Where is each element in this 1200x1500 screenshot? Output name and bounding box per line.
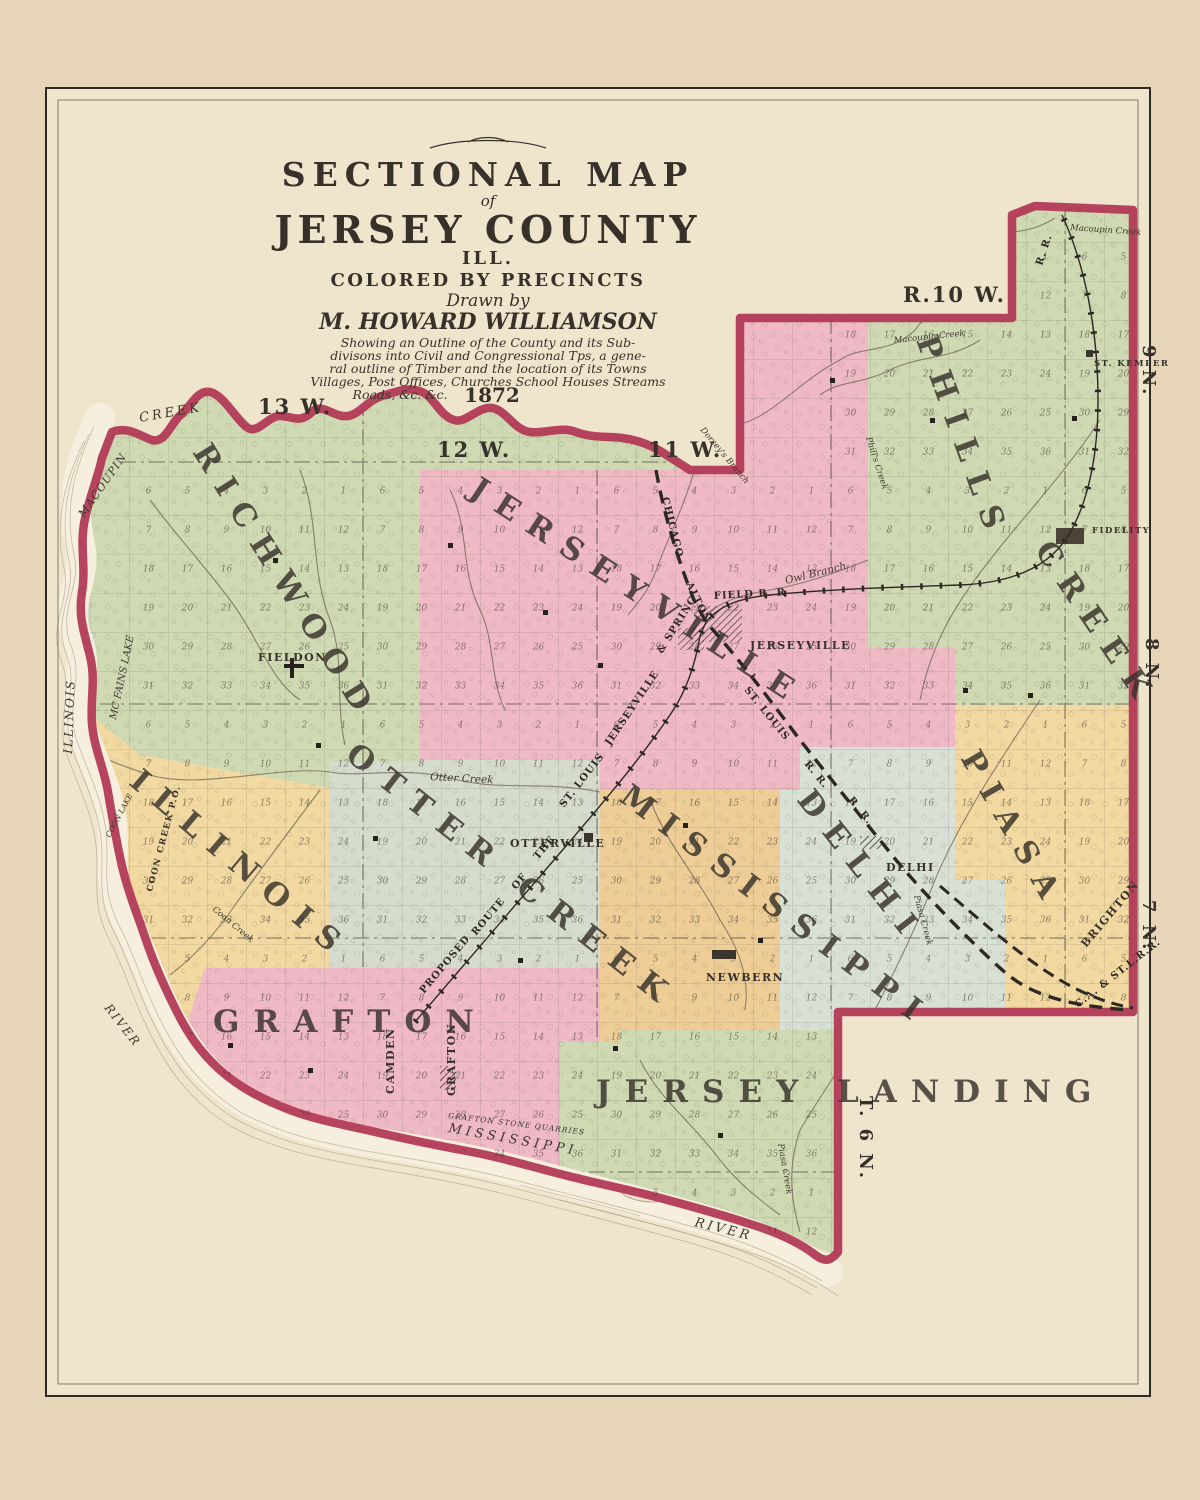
section-number: 20 — [1117, 604, 1130, 614]
section-number: 25 — [571, 877, 584, 887]
section-number: 14 — [1001, 331, 1013, 341]
section-number: 10 — [494, 994, 506, 1004]
section-number: 4 — [223, 955, 230, 965]
section-number: 6 — [380, 955, 386, 965]
section-number: 31 — [611, 1150, 622, 1160]
section-number: 18 — [377, 799, 389, 809]
section-number: 24 — [1039, 838, 1052, 848]
section-number: 32 — [416, 916, 428, 926]
section-number: 35 — [533, 1150, 545, 1160]
section-number: 27 — [259, 643, 272, 653]
section-number: 5 — [653, 955, 659, 965]
section-number: 18 — [845, 565, 857, 575]
section-number: 26 — [532, 643, 545, 653]
section-number: 8 — [887, 994, 893, 1004]
section-number: 22 — [727, 604, 740, 614]
section-number: 8 — [419, 994, 425, 1004]
section-number: 16 — [689, 565, 701, 575]
section-number: 17 — [650, 565, 662, 575]
section-number: 35 — [533, 682, 545, 692]
section-number: 8 — [653, 994, 659, 1004]
section-number: 1 — [809, 721, 815, 731]
section-number: 35 — [299, 916, 311, 926]
section-number: 11 — [1001, 994, 1012, 1004]
section-number: 33 — [455, 682, 467, 692]
section-number: 23 — [1000, 838, 1013, 848]
section-number: 2 — [769, 1189, 776, 1199]
section-number: 21 — [688, 604, 700, 614]
section-number: 24 — [571, 604, 584, 614]
map-sheet: SECTIONAL MAP of JERSEY COUNTY ILL. COLO… — [0, 0, 1200, 1500]
section-number: 4 — [691, 955, 698, 965]
section-number: 9 — [692, 760, 698, 770]
section-number: 26 — [1000, 643, 1013, 653]
section-number: 33 — [689, 682, 701, 692]
section-number: 2 — [769, 721, 776, 731]
section-number: 1 — [575, 487, 581, 497]
section-number: 34 — [962, 916, 974, 926]
section-number: 11 — [533, 760, 544, 770]
section-number: 27 — [727, 1111, 740, 1121]
section-number: 20 — [415, 604, 428, 614]
section-number: 11 — [533, 994, 544, 1004]
section-number: 22 — [259, 604, 272, 614]
section-number: 8 — [1121, 292, 1127, 302]
section-number: 36 — [1040, 682, 1052, 692]
section-number: 6 — [146, 487, 152, 497]
section-number: 29 — [649, 1111, 662, 1121]
section-number: 15 — [260, 799, 272, 809]
section-number: 9 — [458, 526, 464, 536]
section-number: 29 — [181, 877, 194, 887]
section-number: 29 — [1117, 409, 1130, 419]
section-number: 2 — [535, 721, 542, 731]
section-number: 19 — [1079, 370, 1091, 380]
section-number: 2 — [1003, 955, 1010, 965]
section-number: 31 — [1079, 916, 1090, 926]
section-number: 13 — [572, 565, 584, 575]
section-number: 32 — [1118, 448, 1130, 458]
section-number: 24 — [805, 1072, 818, 1082]
section-number: 6 — [614, 721, 620, 731]
section-number: 12 — [338, 994, 350, 1004]
section-number: 14 — [299, 1033, 311, 1043]
section-number: 35 — [767, 682, 779, 692]
section-number: 5 — [1121, 253, 1127, 263]
section-number: 5 — [419, 721, 425, 731]
title-line4: ILL. — [462, 248, 514, 269]
section-number: 17 — [650, 799, 662, 809]
section-number: 31 — [845, 448, 856, 458]
section-number: 36 — [572, 682, 584, 692]
section-number: 18 — [845, 331, 857, 341]
section-number: 35 — [533, 916, 545, 926]
section-number: 31 — [377, 916, 388, 926]
section-number: 25 — [1039, 877, 1052, 887]
section-number: 7 — [146, 526, 152, 536]
section-number: 17 — [416, 565, 428, 575]
section-number: 29 — [181, 643, 194, 653]
section-number: 21 — [688, 1072, 700, 1082]
section-number: 21 — [454, 1072, 466, 1082]
section-number: 20 — [649, 604, 662, 614]
section-number: 21 — [454, 838, 466, 848]
section-number: 17 — [884, 565, 896, 575]
section-number: 27 — [961, 409, 974, 419]
title-author: M. HOWARD WILLIAMSON — [318, 309, 658, 335]
section-number: 30 — [611, 643, 623, 653]
section-number: 18 — [1079, 331, 1091, 341]
section-number: 10 — [260, 760, 272, 770]
section-number: 29 — [883, 877, 896, 887]
section-number: 25 — [571, 643, 584, 653]
section-number: 32 — [650, 682, 662, 692]
section-number: 15 — [260, 565, 272, 575]
section-number: 26 — [766, 1111, 779, 1121]
section-number: 14 — [533, 1033, 545, 1043]
section-number: 18 — [611, 799, 623, 809]
section-number: 23 — [298, 604, 311, 614]
section-number: 15 — [494, 565, 506, 575]
section-number: 17 — [416, 1033, 428, 1043]
section-number: 19 — [845, 604, 857, 614]
section-number: 3 — [497, 955, 503, 965]
section-number: 24 — [571, 1072, 584, 1082]
section-number: 23 — [298, 1072, 311, 1082]
section-number: 10 — [962, 526, 974, 536]
section-number: 6 — [380, 721, 386, 731]
title-block: SECTIONAL MAP of JERSEY COUNTY ILL. COLO… — [272, 138, 702, 408]
section-number: 4 — [691, 721, 698, 731]
section-number: 8 — [653, 760, 659, 770]
section-number: 1 — [809, 1189, 815, 1199]
section-number: 27 — [259, 877, 272, 887]
section-number: 13 — [338, 565, 350, 575]
section-number: 27 — [493, 877, 506, 887]
section-number: 16 — [221, 1033, 233, 1043]
section-number: 16 — [221, 565, 233, 575]
title-drawn-by: Drawn by — [445, 291, 530, 311]
section-number: 36 — [1040, 448, 1052, 458]
section-number: 33 — [923, 448, 935, 458]
section-number: 3 — [731, 721, 737, 731]
section-number: 17 — [182, 799, 194, 809]
precinct-label-jersey-landing: JERSEY LANDING — [593, 1074, 1105, 1110]
section-number: 4 — [457, 955, 464, 965]
section-number: 26 — [1000, 409, 1013, 419]
section-number: 13 — [1040, 799, 1052, 809]
section-number: 3 — [731, 1189, 737, 1199]
section-number: 36 — [572, 1150, 584, 1160]
section-number: 33 — [221, 682, 233, 692]
section-number: 27 — [727, 877, 740, 887]
section-number: 36 — [572, 916, 584, 926]
section-number: 30 — [143, 643, 155, 653]
section-number: 15 — [728, 565, 740, 575]
section-number: 12 — [1040, 292, 1052, 302]
section-number: 30 — [611, 877, 623, 887]
section-number: 15 — [260, 1033, 272, 1043]
section-number: 24 — [805, 604, 818, 614]
section-number: 13 — [572, 1033, 584, 1043]
section-number: 16 — [221, 799, 233, 809]
town-label-fieldon: FIELDON — [258, 651, 327, 664]
section-number: 1 — [1043, 487, 1049, 497]
section-number: 3 — [965, 487, 971, 497]
town-label-delhi: DELHI — [886, 861, 935, 874]
section-number: 24 — [571, 838, 584, 848]
section-number: 20 — [415, 838, 428, 848]
section-number: 20 — [415, 1072, 428, 1082]
section-number: 9 — [692, 526, 698, 536]
section-number: 1 — [1043, 721, 1049, 731]
section-number: 33 — [689, 916, 701, 926]
section-number: 19 — [377, 838, 389, 848]
section-number: 2 — [301, 487, 308, 497]
section-number: 5 — [887, 955, 893, 965]
section-number: 12 — [1040, 994, 1052, 1004]
section-number: 31 — [143, 682, 154, 692]
section-number: 29 — [1117, 877, 1130, 887]
section-number: 9 — [224, 526, 230, 536]
section-number: 14 — [767, 565, 779, 575]
section-number: 20 — [883, 370, 896, 380]
section-number: 10 — [494, 526, 506, 536]
section-number: 34 — [962, 448, 974, 458]
title-line5: COLORED BY PRECINCTS — [330, 270, 645, 291]
section-number: 1 — [341, 955, 347, 965]
section-number: 6 — [1082, 955, 1088, 965]
section-number: 32 — [884, 682, 896, 692]
section-number: 18 — [377, 565, 389, 575]
section-number: 31 — [845, 916, 856, 926]
section-number: 19 — [611, 838, 623, 848]
section-number: 31 — [1079, 448, 1090, 458]
section-number: 20 — [883, 838, 896, 848]
section-number: 29 — [1117, 643, 1130, 653]
section-number: 8 — [887, 760, 893, 770]
town-label-otterville: OTTERVILLE — [510, 837, 605, 850]
section-number: 25 — [337, 877, 350, 887]
section-number: 34 — [728, 916, 740, 926]
section-number: 23 — [766, 1072, 779, 1082]
section-number: 17 — [1118, 565, 1130, 575]
section-number: 7 — [1082, 526, 1088, 536]
section-number: 19 — [143, 838, 155, 848]
section-number: 28 — [454, 1111, 467, 1121]
section-number: 9 — [458, 760, 464, 770]
section-number: 8 — [419, 760, 425, 770]
section-number: 2 — [535, 487, 542, 497]
section-number: 10 — [260, 526, 272, 536]
section-number: 10 — [728, 526, 740, 536]
section-number: 36 — [338, 916, 350, 926]
section-number: 6 — [848, 721, 854, 731]
section-number: 34 — [494, 916, 506, 926]
section-number: 19 — [377, 1072, 389, 1082]
section-number: 5 — [185, 955, 191, 965]
section-number: 31 — [611, 916, 622, 926]
section-number: 12 — [806, 760, 818, 770]
section-number: 22 — [961, 838, 974, 848]
section-number: 7 — [614, 526, 620, 536]
section-number: 13 — [1040, 331, 1052, 341]
section-number: 19 — [845, 370, 857, 380]
section-number: 31 — [377, 682, 388, 692]
section-number: 30 — [1079, 409, 1091, 419]
section-number: 4 — [457, 721, 464, 731]
town-label-jerseyville: JERSEYVILLE — [749, 639, 851, 652]
section-number: 16 — [689, 799, 701, 809]
section-number: 9 — [926, 760, 932, 770]
section-number: 7 — [1082, 292, 1088, 302]
section-number: 19 — [1079, 604, 1091, 614]
section-number: 28 — [688, 643, 701, 653]
st-kemper-block — [1086, 350, 1093, 357]
section-number: 8 — [887, 526, 893, 536]
section-number: 22 — [727, 1072, 740, 1082]
section-number: 31 — [143, 916, 154, 926]
title-year: 1872 — [464, 383, 520, 407]
section-number: 7 — [848, 760, 854, 770]
section-number: 23 — [1000, 370, 1013, 380]
section-number: 17 — [884, 799, 896, 809]
section-number: 22 — [259, 838, 272, 848]
section-number: 23 — [1000, 604, 1013, 614]
section-number: 17 — [650, 1033, 662, 1043]
section-number: 22 — [493, 1072, 506, 1082]
section-number: 27 — [493, 1111, 506, 1121]
section-number: 15 — [962, 799, 974, 809]
section-number: 9 — [458, 994, 464, 1004]
section-number: 28 — [688, 877, 701, 887]
section-number: 30 — [845, 409, 857, 419]
section-number: 18 — [611, 565, 623, 575]
section-number: 15 — [962, 331, 974, 341]
desc-line-5: Roads, &c. &c. — [352, 387, 448, 402]
section-number: 2 — [1003, 721, 1010, 731]
section-number: 16 — [923, 331, 935, 341]
section-number: 15 — [962, 565, 974, 575]
section-number: 25 — [571, 1111, 584, 1121]
water-label-illinois-river: ILLINOIS — [61, 679, 78, 755]
section-number: 8 — [1121, 994, 1127, 1004]
section-number: 30 — [845, 877, 857, 887]
section-number: 13 — [1040, 565, 1052, 575]
section-number: 14 — [767, 799, 779, 809]
section-number: 12 — [806, 526, 818, 536]
section-number: 30 — [377, 643, 389, 653]
section-number: 3 — [497, 487, 503, 497]
section-number: 21 — [922, 604, 934, 614]
section-number: 23 — [298, 838, 311, 848]
section-number: 25 — [805, 877, 818, 887]
section-number: 15 — [728, 1033, 740, 1043]
section-number: 27 — [727, 643, 740, 653]
section-number: 18 — [143, 565, 155, 575]
section-number: 19 — [611, 1072, 623, 1082]
section-number: 28 — [454, 877, 467, 887]
section-number: 1 — [341, 721, 347, 731]
section-number: 25 — [805, 1111, 818, 1121]
section-number: 23 — [532, 838, 545, 848]
section-number: 27 — [493, 643, 506, 653]
section-number: 32 — [182, 916, 194, 926]
section-number: 9 — [692, 994, 698, 1004]
section-number: 14 — [767, 1033, 779, 1043]
section-number: 33 — [689, 1150, 701, 1160]
section-number: 18 — [1079, 799, 1091, 809]
section-number: 4 — [691, 487, 698, 497]
section-number: 17 — [884, 331, 896, 341]
section-number: 16 — [455, 1033, 467, 1043]
section-number: 4 — [925, 721, 932, 731]
section-number: 14 — [1001, 799, 1013, 809]
section-number: 36 — [338, 682, 350, 692]
section-number: 26 — [766, 643, 779, 653]
section-number: 5 — [185, 487, 191, 497]
section-number: 10 — [962, 994, 974, 1004]
section-number: 1 — [809, 487, 815, 497]
section-number: 26 — [298, 643, 311, 653]
title-line1: SECTIONAL MAP — [282, 155, 694, 194]
section-number: 34 — [962, 682, 974, 692]
section-number: 24 — [337, 604, 350, 614]
section-number: 18 — [845, 799, 857, 809]
section-number: 8 — [419, 526, 425, 536]
section-number: 11 — [1001, 526, 1012, 536]
section-number: 10 — [728, 760, 740, 770]
section-number: 34 — [728, 1150, 740, 1160]
section-number: 20 — [1117, 838, 1130, 848]
section-number: 16 — [455, 799, 467, 809]
section-number: 17 — [1118, 799, 1130, 809]
section-number: 5 — [1121, 487, 1127, 497]
section-number: 7 — [380, 994, 386, 1004]
section-number: 30 — [377, 1111, 389, 1121]
section-number: 1 — [341, 487, 347, 497]
section-number: 6 — [1082, 721, 1088, 731]
section-number: 29 — [883, 409, 896, 419]
section-number: 7 — [614, 994, 620, 1004]
section-number: 11 — [299, 526, 310, 536]
section-number: 20 — [883, 604, 896, 614]
section-number: 4 — [457, 487, 464, 497]
section-number: 35 — [299, 682, 311, 692]
section-number: 12 — [338, 760, 350, 770]
section-number: 28 — [220, 877, 233, 887]
section-number: 11 — [533, 526, 544, 536]
section-number: 7 — [848, 994, 854, 1004]
section-number: 2 — [1003, 487, 1010, 497]
section-number: 21 — [220, 838, 232, 848]
section-number: 18 — [143, 799, 155, 809]
section-number: 7 — [614, 760, 620, 770]
section-number: 13 — [572, 799, 584, 809]
section-number: 10 — [494, 760, 506, 770]
section-number: 30 — [1079, 877, 1091, 887]
section-number: 25 — [805, 643, 818, 653]
section-number: 29 — [649, 877, 662, 887]
section-number: 29 — [883, 643, 896, 653]
section-number: 10 — [260, 994, 272, 1004]
section-number: 26 — [298, 877, 311, 887]
section-number: 25 — [1039, 409, 1052, 419]
section-number: 3 — [965, 721, 971, 731]
section-number: 34 — [728, 682, 740, 692]
section-number: 4 — [223, 487, 230, 497]
section-number: 6 — [146, 721, 152, 731]
